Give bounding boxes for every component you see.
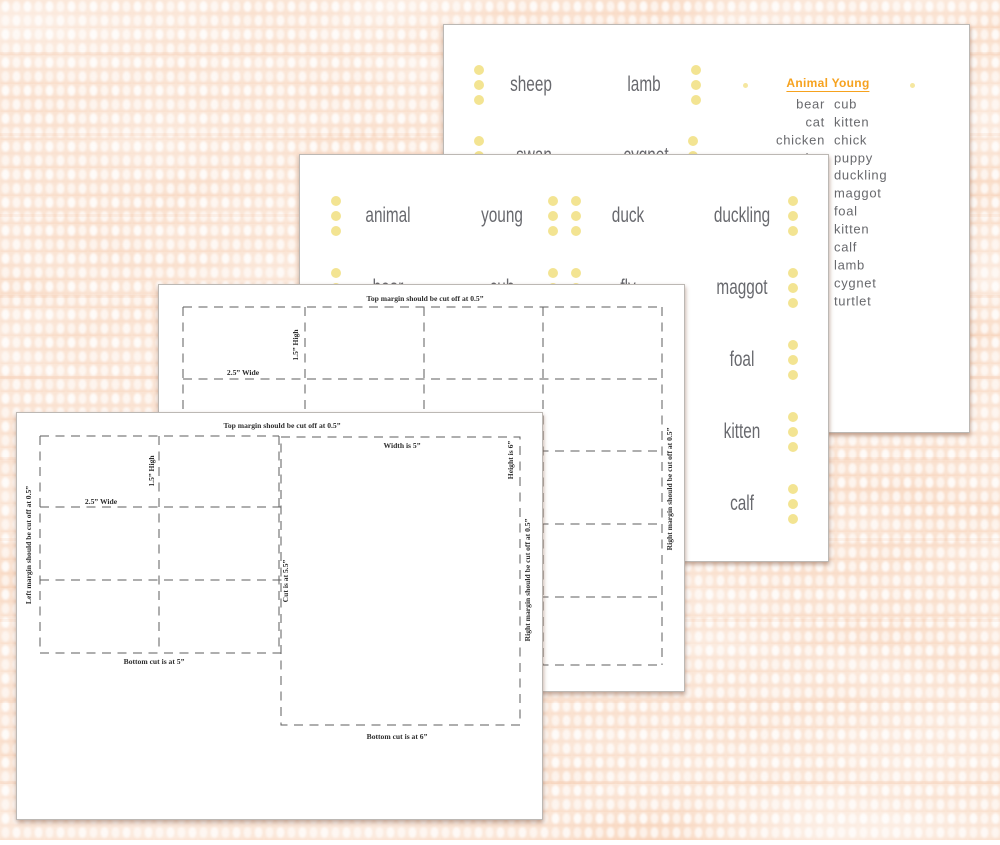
svg-text:Height is 6”: Height is 6” bbox=[506, 441, 515, 480]
svg-text:Top margin should be cut off a: Top margin should be cut off at 0.5” bbox=[366, 294, 483, 303]
svg-text:Left margin should be cut off: Left margin should be cut off at 0.5” bbox=[24, 486, 33, 604]
svg-text:1.5” High: 1.5” High bbox=[147, 455, 156, 487]
svg-text:Cut is at 5.5”: Cut is at 5.5” bbox=[281, 559, 290, 602]
svg-text:2.5” Wide: 2.5” Wide bbox=[85, 497, 118, 506]
svg-text:Right margin should be cut off: Right margin should be cut off at 0.5” bbox=[523, 518, 532, 641]
svg-text:Bottom cut is at 6”: Bottom cut is at 6” bbox=[367, 732, 428, 741]
svg-text:2.5” Wide: 2.5” Wide bbox=[227, 368, 260, 377]
svg-text:Top margin should be cut off a: Top margin should be cut off at 0.5” bbox=[223, 421, 340, 430]
svg-text:Bottom cut is at 5”: Bottom cut is at 5” bbox=[124, 657, 185, 666]
svg-text:1.5” High: 1.5” High bbox=[291, 329, 300, 361]
svg-text:Right margin should be cut off: Right margin should be cut off at 0.5” bbox=[665, 427, 674, 550]
svg-text:Width is 5”: Width is 5” bbox=[384, 441, 421, 450]
